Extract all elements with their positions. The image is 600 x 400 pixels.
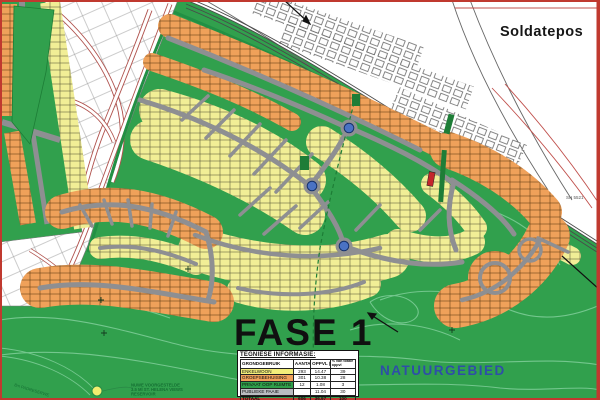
phase-label: FASE 1 [234, 312, 374, 353]
erf-ref-label: SH 5521 [566, 195, 584, 200]
table-row-groepsbehuising: GROEPSBEHUISING 301 10.38 28 [241, 375, 356, 382]
landuse-label: PUBLIEKE PAAIE [241, 388, 294, 395]
roundabout-icon [339, 241, 349, 251]
landuse-label: ENKELWOON [241, 368, 294, 375]
table-header-row: GRONDGEBRUIK AANTAL OPPVL (ha) % van tot… [241, 360, 356, 369]
reservoir-note-line3: RESERVOIR [131, 392, 156, 397]
plan-map: SH 5521 Soldatepos [0, 0, 600, 400]
roundabout-icon [344, 123, 354, 133]
landuse-label: PRIVAAT OOP RUIMTE [241, 382, 294, 389]
area-name-label: Soldatepos [500, 24, 583, 40]
private-open-space-north [352, 94, 360, 106]
roundabout-icon [307, 181, 317, 191]
landuse-label: GROEPSBEHUISING [241, 375, 294, 382]
private-open-space-mid [300, 156, 309, 170]
header-persent: % van totale oppvl [330, 360, 355, 369]
header-grondgebruik: GRONDGEBRUIK [241, 360, 294, 369]
header-oppvl: OPPVL (ha) [311, 360, 331, 369]
table-row-publieke-paaie: PUBLIEKE PAAIE 11.04 30 [241, 388, 356, 395]
technical-info-table: TEGNIESE INFORMASIE: GRONDGEBRUIK AANTAL… [237, 350, 359, 397]
table-row-privaat-oop-ruimte: PRIVAAT OOP RUIMTE 12 1.08 3 [241, 382, 356, 389]
table-title: TEGNIESE INFORMASIE: [240, 352, 356, 358]
table-row-totaal: TOTAAL 606 36.97 100 [241, 395, 356, 400]
nature-area-label: NATUURGEBIED [380, 363, 506, 378]
reservoir-marker [92, 386, 102, 396]
site-development-plan: SH 5521 Soldatepos [0, 0, 600, 400]
landuse-label: TOTAAL [241, 395, 294, 400]
table-row-enkelwoon: ENKELWOON 293 14.47 39 [241, 368, 356, 375]
header-aantal: AANTAL [293, 360, 310, 369]
